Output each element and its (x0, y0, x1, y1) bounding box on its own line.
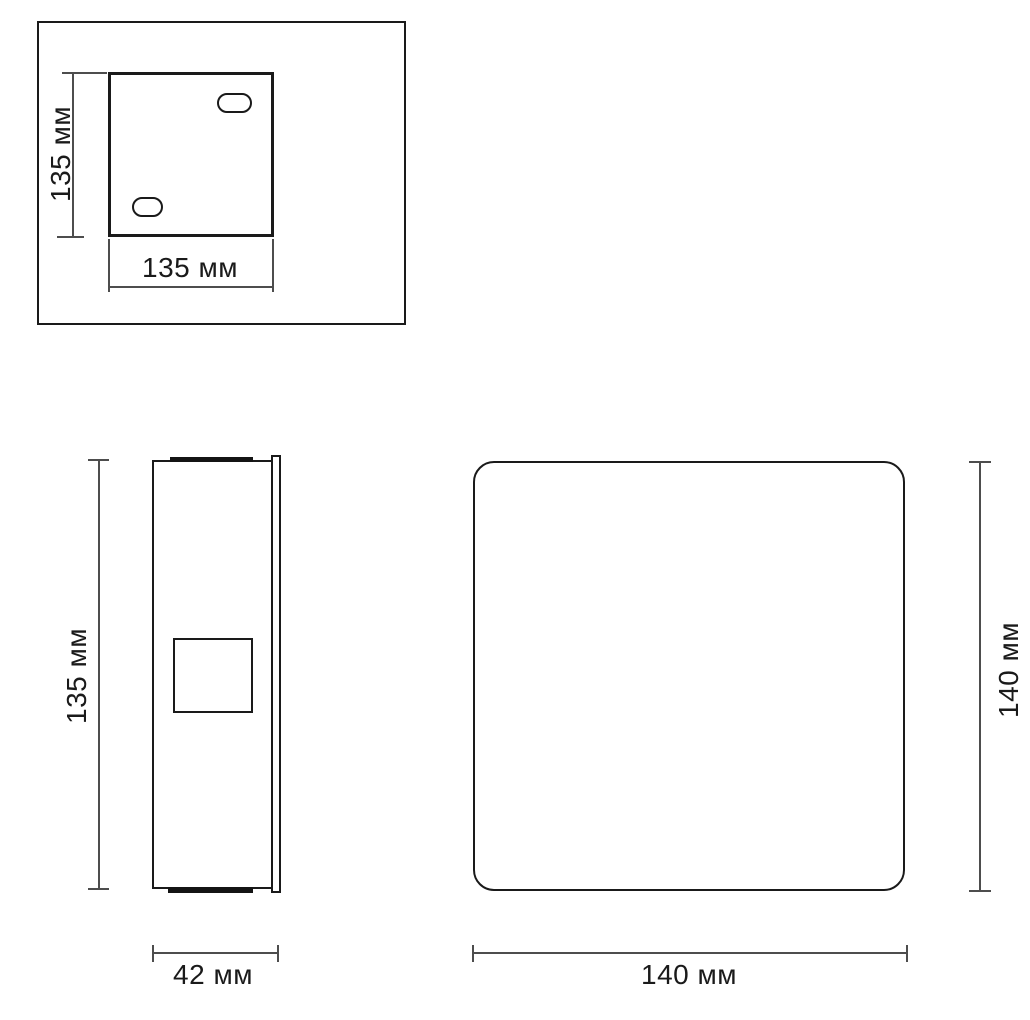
side-view-top-gasket (170, 457, 253, 462)
plate-width-label: 135 мм (130, 253, 250, 283)
side-depth-label: 42 мм (153, 960, 273, 990)
front-width-label: 140 мм (629, 960, 749, 990)
side-view-bottom-gasket (168, 887, 253, 893)
technical-drawing-canvas: 135 мм 135 мм 135 мм 42 мм 140 мм (0, 0, 1030, 1020)
side-view-junction-box (173, 638, 253, 713)
front-view-face (473, 461, 905, 891)
plate-height-label: 135 мм (46, 94, 76, 214)
mounting-slot-top-right (217, 93, 252, 113)
front-height-label: 140 мм (994, 610, 1024, 730)
side-height-label: 135 мм (62, 616, 92, 736)
mounting-slot-bottom-left (132, 197, 163, 217)
side-view-back-plate (271, 455, 281, 893)
